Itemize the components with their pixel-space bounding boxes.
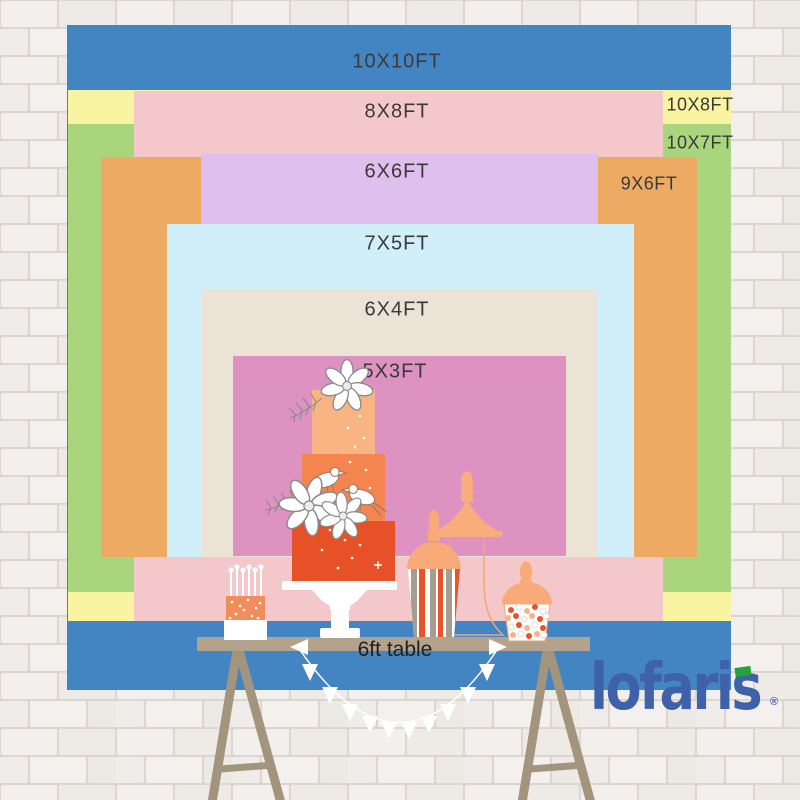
candle-cake-icon <box>224 564 267 640</box>
trestle-leg-left <box>212 650 281 800</box>
logo-text: lofaris <box>590 656 760 720</box>
registered-trademark-icon: ® <box>770 696 778 708</box>
three-tier-cake-icon <box>263 360 397 638</box>
cake-stand-icon <box>282 581 397 638</box>
candy-jar-icon <box>502 561 552 641</box>
trestle-leg-right <box>522 650 591 800</box>
lofaris-logo: lofaris ® <box>590 656 800 736</box>
backdrop-size-chart: 10X10FT 8X8FT 6X6FT 7X5FT 6X4FT 5X3FT 10… <box>0 0 800 800</box>
table-size-label: 6ft table <box>358 638 433 662</box>
